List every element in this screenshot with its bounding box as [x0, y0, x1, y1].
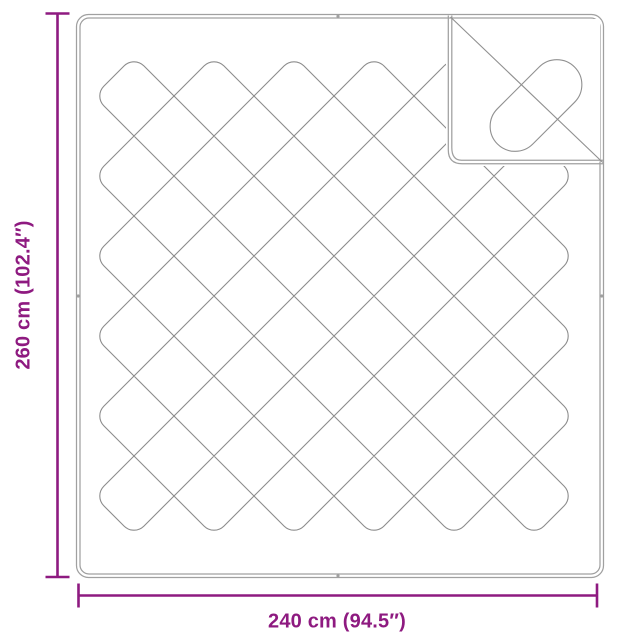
edge-midpoint-dot: [77, 294, 80, 297]
edge-midpoint-dot: [336, 574, 339, 577]
height-dimension-label: 260 cm (102.4″): [13, 220, 36, 369]
corner-flap-fill: [450, 19, 601, 162]
blanket-line-art: [0, 0, 640, 640]
width-dimension-label: 240 cm (94.5″): [268, 611, 406, 634]
corner-flap: [448, 16, 603, 164]
edge-midpoint-dot: [600, 294, 603, 297]
edge-midpoint-dot: [336, 15, 339, 18]
product-dimension-diagram: 260 cm (102.4″) 240 cm (94.5″): [0, 0, 640, 640]
height-dimension-line: [46, 14, 70, 578]
width-dimension-line: [79, 584, 598, 608]
